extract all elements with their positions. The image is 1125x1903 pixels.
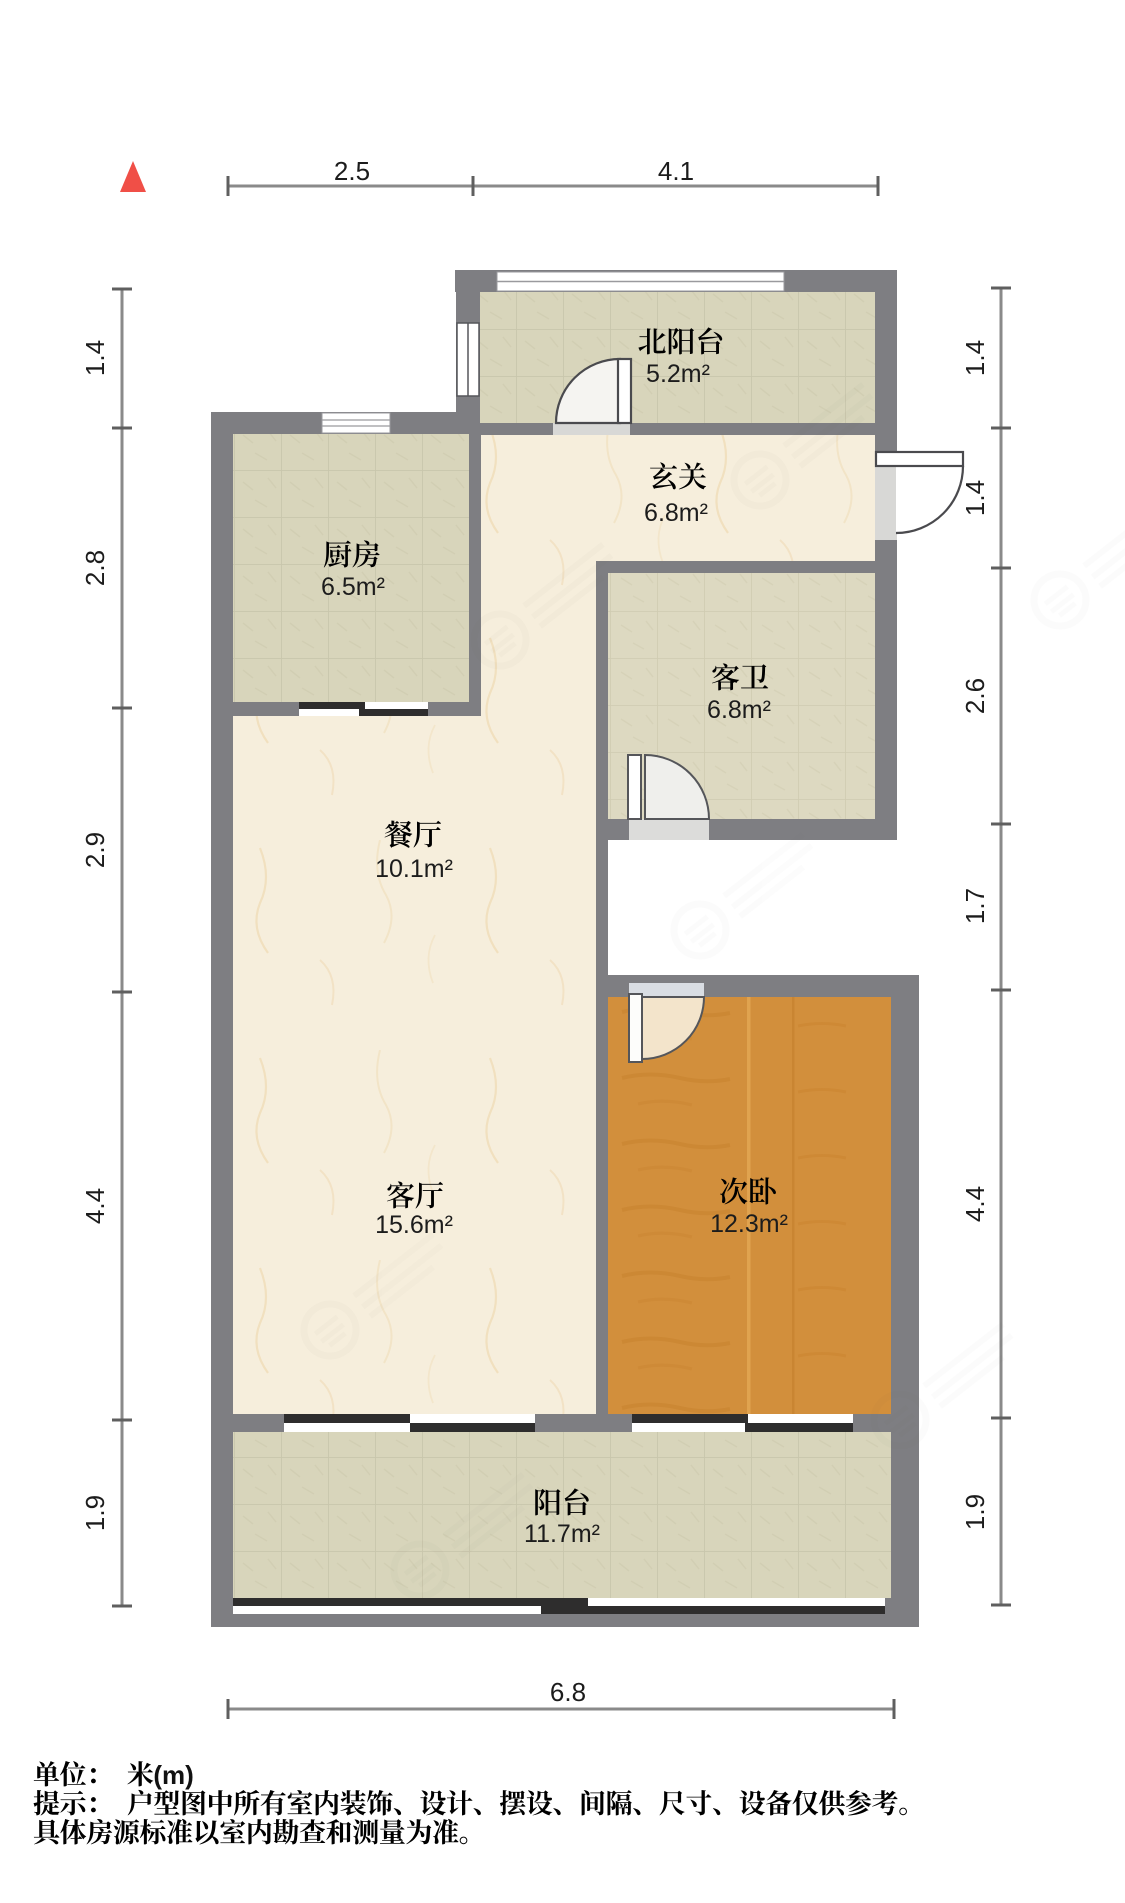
svg-text:15.6m²: 15.6m²: [375, 1211, 453, 1239]
svg-text:2.8: 2.8: [80, 550, 110, 586]
svg-text:6.5m²: 6.5m²: [321, 573, 385, 601]
svg-text:2.9: 2.9: [80, 832, 110, 868]
svg-text:1.4: 1.4: [960, 480, 990, 516]
svg-text:2.5: 2.5: [334, 156, 370, 186]
svg-text:(m): (m): [153, 1760, 193, 1790]
svg-text:1.7: 1.7: [960, 888, 990, 924]
svg-text:1.9: 1.9: [80, 1495, 110, 1531]
svg-text:2.6: 2.6: [960, 678, 990, 714]
svg-text:4.4: 4.4: [80, 1188, 110, 1224]
svg-text:10.1m²: 10.1m²: [375, 855, 453, 883]
svg-text:6.8m²: 6.8m²: [644, 499, 708, 527]
svg-text:1.4: 1.4: [960, 340, 990, 376]
svg-text:11.7m²: 11.7m²: [524, 1520, 600, 1548]
svg-text:6.8m²: 6.8m²: [707, 696, 771, 724]
svg-text:6.8: 6.8: [550, 1677, 586, 1707]
svg-text:4.4: 4.4: [960, 1186, 990, 1222]
svg-text:1.4: 1.4: [80, 340, 110, 376]
svg-text:1.9: 1.9: [960, 1494, 990, 1530]
svg-text:4.1: 4.1: [658, 156, 694, 186]
svg-text:5.2m²: 5.2m²: [646, 360, 710, 388]
svg-text:12.3m²: 12.3m²: [710, 1210, 788, 1238]
